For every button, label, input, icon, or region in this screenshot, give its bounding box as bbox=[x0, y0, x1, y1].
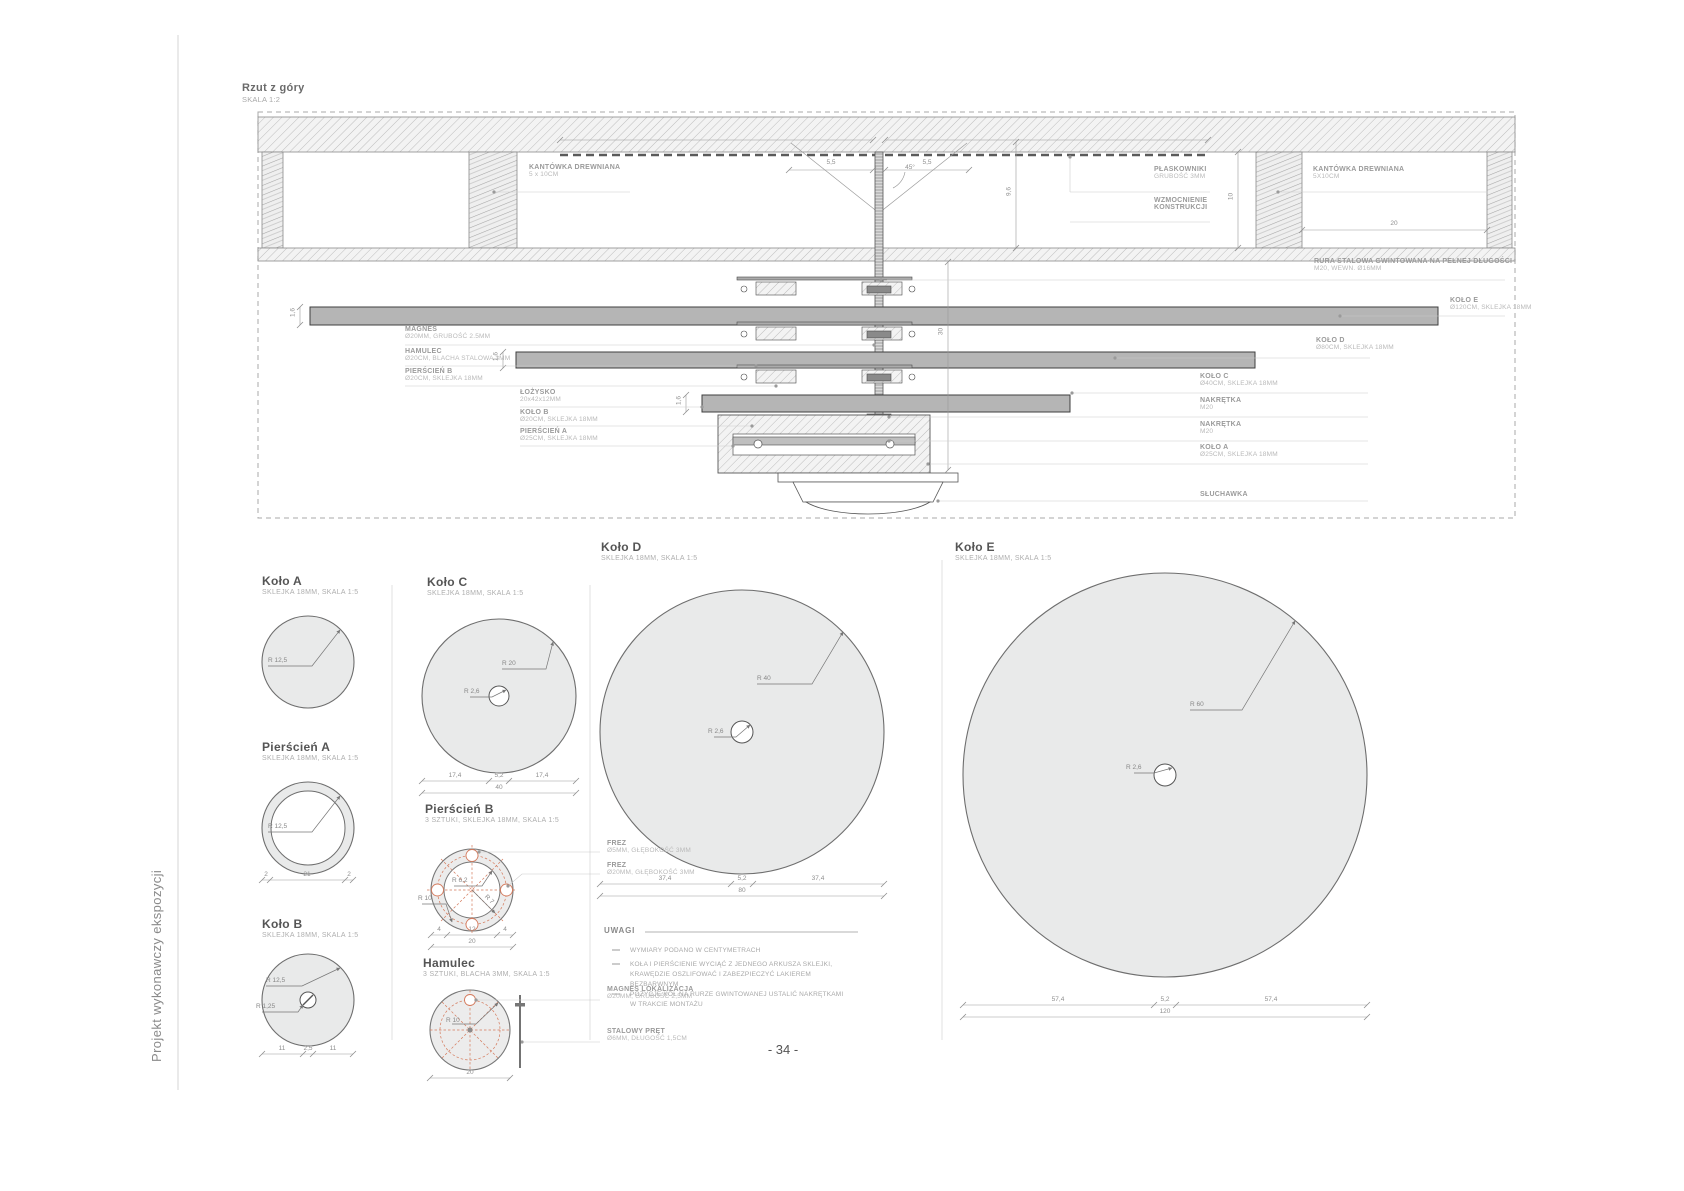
dim-value: 4 bbox=[424, 926, 454, 933]
dim-total: 20 bbox=[457, 938, 487, 945]
dim-value: 17,4 bbox=[527, 772, 557, 779]
radius-label: R 6,2 bbox=[452, 877, 468, 884]
dim-value: 21 bbox=[292, 871, 322, 878]
uwagi-title: UWAGI bbox=[604, 926, 635, 935]
radius-label: R 2,6 bbox=[464, 688, 480, 695]
section-sub-pierscien-a: SKLEJKA 18MM, SKALA 1:5 bbox=[262, 755, 358, 762]
uwagi-note: KOŁA I PIERŚCIENIE WYCIĄĆ Z JEDNEGO ARKU… bbox=[630, 960, 845, 990]
dim-value: 37,4 bbox=[650, 875, 680, 882]
uwagi-note: POZYCJE KÓŁ NA RURZE GWINTOWANEJ USTALIĆ… bbox=[630, 990, 845, 1010]
annotation-kolo-a: KOŁO A Ø25CM, SKLEJKA 18MM bbox=[1200, 444, 1278, 458]
dim-total: 80 bbox=[727, 887, 757, 894]
annotation-frez-2: FREZ Ø20MM, GŁĘBOKOŚĆ 3MM bbox=[607, 862, 695, 876]
radius-label: R 20 bbox=[502, 660, 516, 667]
section-title-kolo-e: Koło E bbox=[955, 540, 995, 554]
section-title-pierscien-a: Pierścień A bbox=[262, 740, 330, 754]
dim-value: 20 bbox=[1379, 220, 1409, 227]
annotation-lozysko: ŁOŻYSKO 20x42x12MM bbox=[520, 389, 561, 403]
dim-value: 11 bbox=[318, 1045, 348, 1052]
drawing-geometry bbox=[0, 0, 1684, 1191]
radius-label: R 12,5 bbox=[268, 657, 287, 664]
dim-value: 1,6 bbox=[676, 386, 683, 416]
dim-value: 2 bbox=[334, 871, 364, 878]
annotation-plaskowniki: PŁASKOWNIKI GRUBOŚĆ 3MM bbox=[1154, 166, 1207, 180]
dim-value: 1,6 bbox=[493, 342, 500, 372]
dim-angle: 45° bbox=[895, 164, 925, 171]
annotation-kantowka-right: KANTÓWKA DREWNIANA 5X10CM bbox=[1313, 166, 1404, 180]
side-project-label: Projekt wykonawczy ekspozycji bbox=[149, 870, 164, 1062]
annotation-kolo-d: KOŁO D Ø80CM, SKLEJKA 18MM bbox=[1316, 337, 1394, 351]
dim-value: 4 bbox=[490, 926, 520, 933]
annotation-rura: RURA STALOWA GWINTOWANA NA PEŁNEJ DŁUGOŚ… bbox=[1314, 258, 1512, 272]
dim-total: 40 bbox=[484, 784, 514, 791]
radius-label: R 1,25 bbox=[256, 1003, 275, 1010]
section-title-kolo-c: Koło C bbox=[427, 575, 467, 589]
uwagi-note: WYMIARY PODANO W CENTYMETRACH bbox=[630, 946, 845, 956]
dim-value: 12 bbox=[457, 926, 487, 933]
dim-value: 5,2 bbox=[727, 875, 757, 882]
radius-label: R 40 bbox=[757, 675, 771, 682]
section-sub-kolo-c: SKLEJKA 18MM, SKALA 1:5 bbox=[427, 590, 523, 597]
radius-label: R 12,5 bbox=[266, 977, 285, 984]
annotation-stalowy-pret: STALOWY PRĘT Ø6MM, DŁUGOŚĆ 1,5CM bbox=[607, 1028, 687, 1042]
section-sub-kolo-d: SKLEJKA 18MM, SKALA 1:5 bbox=[601, 555, 697, 562]
radius-label: R 2,6 bbox=[708, 728, 724, 735]
annotation-kantowka-left: KANTÓWKA DREWNIANA 5 x 10CM bbox=[529, 164, 620, 178]
radius-label: R 10 bbox=[446, 1017, 460, 1024]
section-title-kolo-a: Koło A bbox=[262, 574, 302, 588]
annotation-pierscien-b: PIERŚCIEŃ B Ø20CM, SKLEJKA 18MM bbox=[405, 368, 483, 382]
section-title-kolo-d: Koło D bbox=[601, 540, 641, 554]
dim-total: 20 bbox=[455, 1069, 485, 1076]
section-sub-pierscien-b: 3 SZTUKI, SKLEJKA 18MM, SKALA 1:5 bbox=[425, 817, 559, 824]
annotation-wzmocnienie: WZMOCNIENIE KONSTRUKCJI bbox=[1154, 197, 1207, 211]
dim-value: 5,5 bbox=[816, 159, 846, 166]
annotation-kolo-b: KOŁO B Ø20CM, SKLEJKA 18MM bbox=[520, 409, 598, 423]
dim-value: 37,4 bbox=[803, 875, 833, 882]
dim-total: 120 bbox=[1150, 1008, 1180, 1015]
section-sub-kolo-b: SKLEJKA 18MM, SKALA 1:5 bbox=[262, 932, 358, 939]
top-view-scale: SKALA 1:2 bbox=[242, 95, 280, 104]
top-view-title: Rzut z góry bbox=[242, 82, 305, 94]
section-sub-kolo-a: SKLEJKA 18MM, SKALA 1:5 bbox=[262, 589, 358, 596]
annotation-magnes: MAGNES Ø20MM, GRUBOŚĆ 2.5MM bbox=[405, 326, 490, 340]
drawing-page: Rzut z góry SKALA 1:2 KANTÓWKA DREWNIANA… bbox=[0, 0, 1684, 1191]
annotation-kolo-c: KOŁO C Ø40CM, SKLEJKA 18MM bbox=[1200, 373, 1278, 387]
dim-value: 57,4 bbox=[1256, 996, 1286, 1003]
annotation-nakretka-1: NAKRĘTKA M20 bbox=[1200, 397, 1241, 411]
annotation-kolo-e: KOŁO E Ø120CM, SKLEJKA 18MM bbox=[1450, 297, 1532, 311]
radius-label: R 60 bbox=[1190, 701, 1204, 708]
dim-value: 2 bbox=[251, 871, 281, 878]
annotation-sluchawka: SŁUCHAWKA bbox=[1200, 491, 1248, 498]
dim-value: 10 bbox=[1228, 182, 1235, 212]
section-title-kolo-b: Koło B bbox=[262, 917, 302, 931]
annotation-nakretka-2: NAKRĘTKA M20 bbox=[1200, 421, 1241, 435]
dim-value: 5,2 bbox=[1150, 996, 1180, 1003]
section-title-pierscien-b: Pierścień B bbox=[425, 802, 494, 816]
annotation-frez-1: FREZ Ø5MM, GŁĘBOKOŚĆ 3MM bbox=[607, 840, 691, 854]
radius-label: R 10 bbox=[418, 895, 432, 902]
radius-label: R 12,5 bbox=[268, 823, 287, 830]
annotation-pierscien-a: PIERŚCIEŃ A Ø25CM, SKLEJKA 18MM bbox=[520, 428, 598, 442]
dim-value: 9,6 bbox=[1006, 177, 1013, 207]
section-sub-hamulec: 3 SZTUKI, BLACHA 3MM, SKALA 1:5 bbox=[423, 971, 550, 978]
radius-label: R 2,6 bbox=[1126, 764, 1142, 771]
dim-value: 57,4 bbox=[1043, 996, 1073, 1003]
dim-value: 17,4 bbox=[440, 772, 470, 779]
dim-value: 1,6 bbox=[290, 298, 297, 328]
dim-value: 5,2 bbox=[484, 772, 514, 779]
section-title-hamulec: Hamulec bbox=[423, 956, 475, 970]
page-number: - 34 - bbox=[723, 1042, 843, 1057]
dim-value: 30 bbox=[938, 317, 945, 347]
section-sub-kolo-e: SKLEJKA 18MM, SKALA 1:5 bbox=[955, 555, 1051, 562]
